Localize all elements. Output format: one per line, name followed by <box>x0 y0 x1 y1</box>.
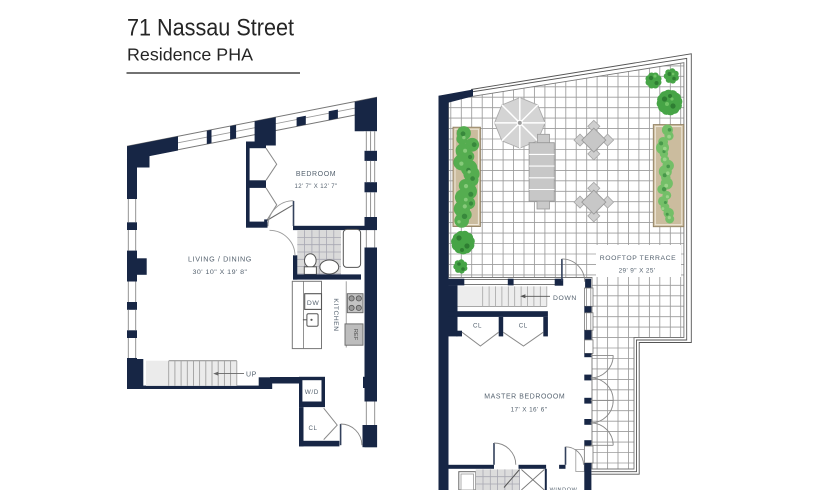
svg-text:MASTER BEDROOOM: MASTER BEDROOOM <box>484 394 565 401</box>
svg-text:ROOFTOP TERRACE: ROOFTOP TERRACE <box>600 255 677 262</box>
svg-text:W/D: W/D <box>305 389 319 396</box>
svg-text:CL: CL <box>473 323 482 330</box>
svg-text:KITCHEN: KITCHEN <box>332 298 339 331</box>
svg-text:CL: CL <box>519 323 528 330</box>
svg-text:DW: DW <box>307 300 320 307</box>
svg-text:DOWN: DOWN <box>553 295 577 302</box>
svg-text:12' 7" X 12' 7": 12' 7" X 12' 7" <box>295 183 338 190</box>
svg-text:17' X 16' 6": 17' X 16' 6" <box>511 407 548 414</box>
svg-text:REF: REF <box>352 329 358 341</box>
svg-text:29' 9" X 25': 29' 9" X 25' <box>619 268 656 275</box>
svg-text:Residence PHA: Residence PHA <box>127 45 253 65</box>
svg-text:BEDROOM: BEDROOM <box>296 171 336 178</box>
svg-text:LIVING / DINING: LIVING / DINING <box>188 257 252 264</box>
svg-text:UP: UP <box>246 372 257 379</box>
svg-text:CL: CL <box>308 425 317 432</box>
svg-text:71 Nassau Street: 71 Nassau Street <box>127 15 294 42</box>
svg-text:30' 10" X 19' 8": 30' 10" X 19' 8" <box>193 269 248 276</box>
